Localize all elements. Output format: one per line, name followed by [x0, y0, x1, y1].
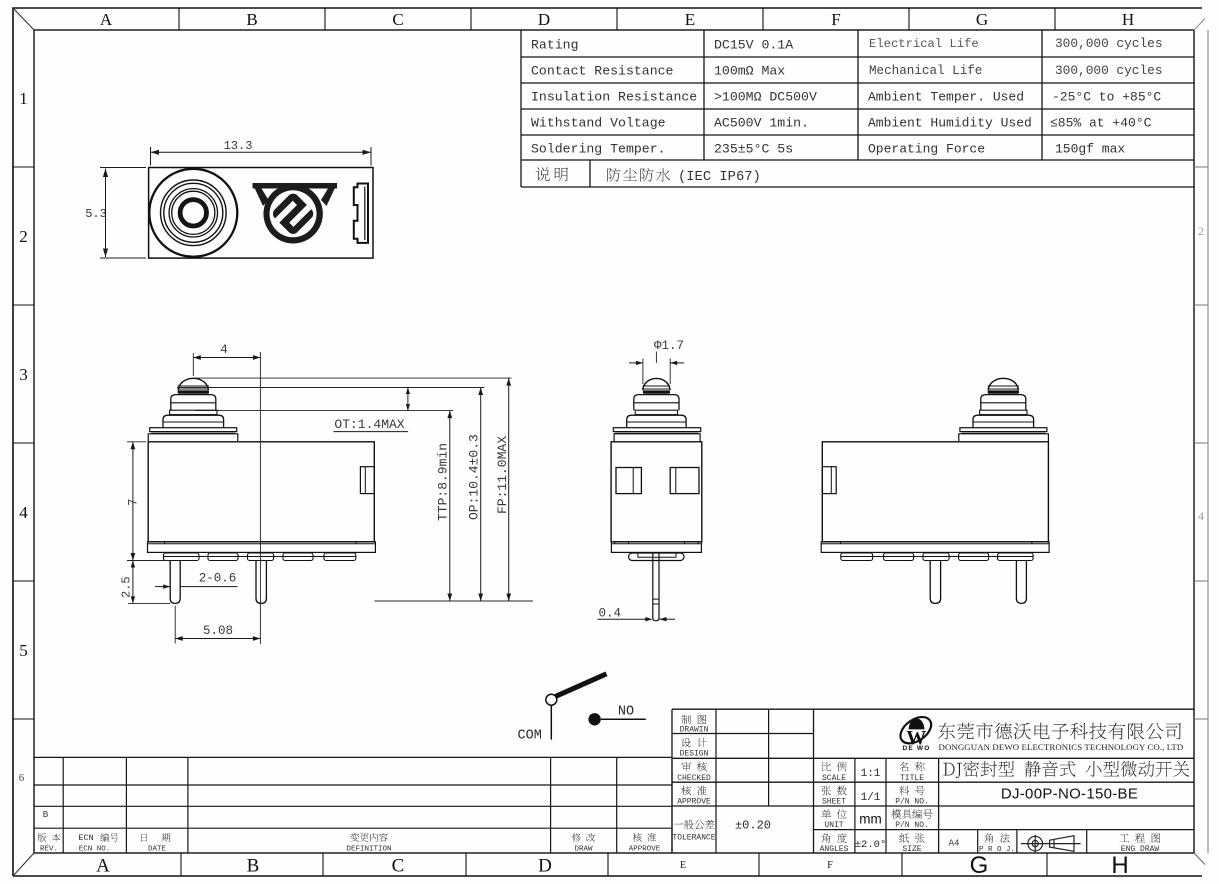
svg-text:ECN: ECN: [78, 833, 93, 843]
svg-text:A: A: [100, 10, 113, 29]
svg-text:Rating: Rating: [531, 38, 578, 53]
svg-text:DONGGUAN DEWO ELECTRONICS TECH: DONGGUAN DEWO ELECTRONICS TECHNOLOGY CO.…: [939, 742, 1184, 752]
svg-text:P/N NO.: P/N NO.: [895, 821, 929, 830]
svg-text:E: E: [685, 10, 695, 29]
svg-text:SIZE: SIZE: [902, 845, 921, 854]
svg-text:DEFINITION: DEFINITION: [346, 846, 391, 854]
svg-text:Ambient Humidity Used: Ambient Humidity Used: [868, 116, 1032, 131]
svg-text:C: C: [392, 10, 403, 29]
svg-text:-25°C to +85°C: -25°C to +85°C: [1052, 90, 1161, 105]
svg-text:100mΩ Max: 100mΩ Max: [714, 64, 785, 79]
svg-text:2-0.6: 2-0.6: [199, 572, 237, 586]
svg-text:>100MΩ DC500V: >100MΩ DC500V: [714, 90, 817, 105]
svg-text:1: 1: [19, 89, 28, 108]
svg-text:5.08: 5.08: [203, 624, 233, 638]
svg-text:APPROVE: APPROVE: [677, 798, 711, 807]
svg-text:Operating Force: Operating Force: [868, 142, 985, 157]
svg-text:4: 4: [1198, 509, 1204, 523]
svg-text:DJ-00P-NO-150-BE: DJ-00P-NO-150-BE: [1001, 786, 1138, 803]
svg-text:Contact Resistance: Contact Resistance: [531, 64, 674, 79]
svg-text:DRAW: DRAW: [574, 846, 593, 854]
svg-text:2.5: 2.5: [120, 576, 134, 598]
svg-text:Soldering Temper.: Soldering Temper.: [531, 142, 666, 157]
svg-text:REV.: REV.: [40, 846, 58, 854]
svg-text:A: A: [96, 856, 110, 877]
svg-text:DESIGN: DESIGN: [680, 750, 709, 759]
svg-text:P R O J.: P R O J.: [979, 846, 1015, 854]
svg-text:235±5°C 5s: 235±5°C 5s: [714, 142, 793, 157]
svg-text:Mechanical Life: Mechanical Life: [869, 64, 982, 78]
svg-text:UNIT: UNIT: [824, 821, 843, 830]
svg-text:Φ1.7: Φ1.7: [654, 339, 684, 353]
svg-text:G: G: [976, 10, 988, 29]
svg-text:3: 3: [19, 365, 28, 384]
svg-text:B: B: [247, 856, 260, 877]
svg-text:1/1: 1/1: [861, 792, 881, 804]
svg-text:ECN NO.: ECN NO.: [79, 846, 111, 854]
svg-text:APPROVE: APPROVE: [629, 846, 661, 854]
svg-text:DATE: DATE: [148, 846, 167, 854]
svg-text:7: 7: [127, 498, 141, 506]
svg-text:COM: COM: [518, 729, 542, 744]
svg-text:300,000 cycles: 300,000 cycles: [1055, 63, 1163, 78]
svg-text:C: C: [392, 856, 405, 877]
svg-text:Insulation Resistance: Insulation Resistance: [531, 90, 697, 105]
svg-text:P/N NO.: P/N NO.: [895, 798, 929, 807]
svg-text:OP:10.4±0.3: OP:10.4±0.3: [467, 434, 482, 520]
svg-text:ANGLES: ANGLES: [820, 845, 849, 854]
svg-text:D: D: [538, 856, 552, 877]
svg-text:DC15V 0.1A: DC15V 0.1A: [714, 38, 793, 53]
svg-text:2: 2: [19, 227, 28, 246]
svg-text:13.3: 13.3: [224, 139, 253, 153]
svg-text:1:1: 1:1: [861, 768, 881, 780]
svg-text:TTP:8.9min: TTP:8.9min: [436, 443, 451, 521]
svg-text:±0.20: ±0.20: [735, 819, 771, 833]
svg-text:A4: A4: [949, 839, 960, 849]
svg-text:F: F: [827, 860, 833, 871]
svg-text:B: B: [43, 809, 49, 820]
svg-text:300,000 cycles: 300,000 cycles: [1055, 36, 1163, 51]
svg-text:G: G: [970, 852, 989, 879]
svg-text:E: E: [680, 860, 686, 871]
svg-text:Withstand Voltage: Withstand Voltage: [531, 116, 666, 131]
svg-text:5: 5: [19, 641, 28, 660]
svg-text:NO: NO: [618, 704, 634, 719]
svg-text:≤85% at +40°C: ≤85% at +40°C: [1050, 116, 1152, 131]
svg-text:TOLERANCE: TOLERANCE: [672, 834, 715, 843]
svg-text:F: F: [831, 10, 840, 29]
svg-text:H: H: [1111, 852, 1128, 879]
svg-text:OT:1.4MAX: OT:1.4MAX: [334, 417, 404, 432]
svg-text:H: H: [1122, 10, 1134, 29]
svg-text:mm: mm: [859, 812, 882, 827]
svg-text:5.3: 5.3: [85, 207, 107, 221]
svg-text:DRAWIN: DRAWIN: [680, 726, 709, 735]
svg-text:ENG DRAW: ENG DRAW: [1121, 845, 1160, 854]
svg-text:4: 4: [19, 503, 28, 522]
svg-text:AC500V 1min.: AC500V 1min.: [714, 116, 809, 131]
svg-text:4: 4: [220, 343, 228, 357]
svg-text:B: B: [246, 10, 257, 29]
svg-text:FP:11.0MAX: FP:11.0MAX: [495, 436, 510, 514]
svg-text:Electrical Life: Electrical Life: [869, 37, 979, 51]
svg-text:150gf max: 150gf max: [1055, 142, 1125, 157]
svg-text:SHEET: SHEET: [822, 798, 846, 807]
svg-text:CHECKED: CHECKED: [677, 774, 711, 783]
svg-text:(IEC IP67): (IEC IP67): [678, 169, 761, 185]
svg-text:SCALE: SCALE: [822, 774, 846, 783]
svg-text:±2.0°: ±2.0°: [855, 839, 887, 851]
svg-text:6: 6: [19, 772, 25, 784]
svg-text:0.4: 0.4: [599, 607, 622, 621]
svg-text:DE WO: DE WO: [902, 745, 930, 752]
svg-text:Ambient Temper. Used: Ambient Temper. Used: [868, 90, 1024, 105]
svg-text:TITLE: TITLE: [900, 774, 924, 783]
svg-text:D: D: [538, 10, 550, 29]
svg-text:2: 2: [1198, 224, 1204, 238]
